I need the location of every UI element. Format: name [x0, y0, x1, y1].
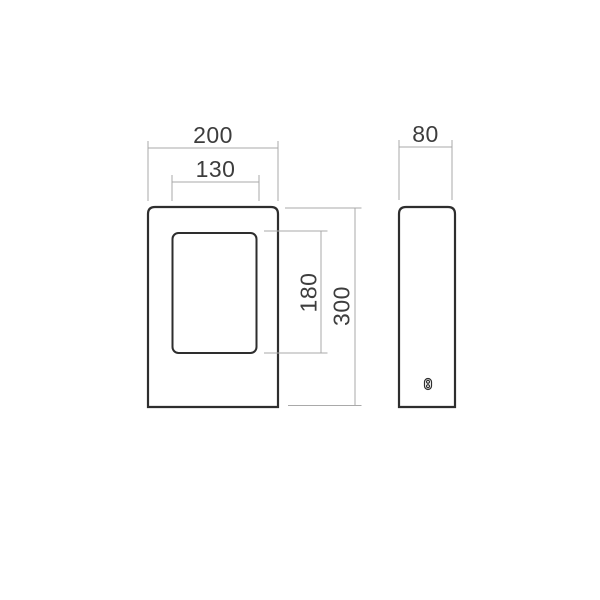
drawing-svg: 200 130 80 180 [0, 0, 600, 600]
side-view-outline [399, 207, 455, 407]
front-view-outline [148, 207, 278, 407]
dimension-label-cutout-height: 180 [296, 273, 322, 313]
dimension-depth: 80 [399, 121, 452, 200]
dimension-label-cutout-width: 130 [196, 156, 236, 182]
dimension-cutout-width: 130 [172, 156, 259, 201]
front-view [148, 207, 278, 407]
dimension-label-front-width: 200 [193, 122, 233, 148]
dimension-label-height: 300 [329, 286, 355, 326]
technical-drawing-page: 200 130 80 180 [0, 0, 600, 600]
dimension-label-depth: 80 [412, 121, 439, 147]
side-view [399, 207, 455, 407]
